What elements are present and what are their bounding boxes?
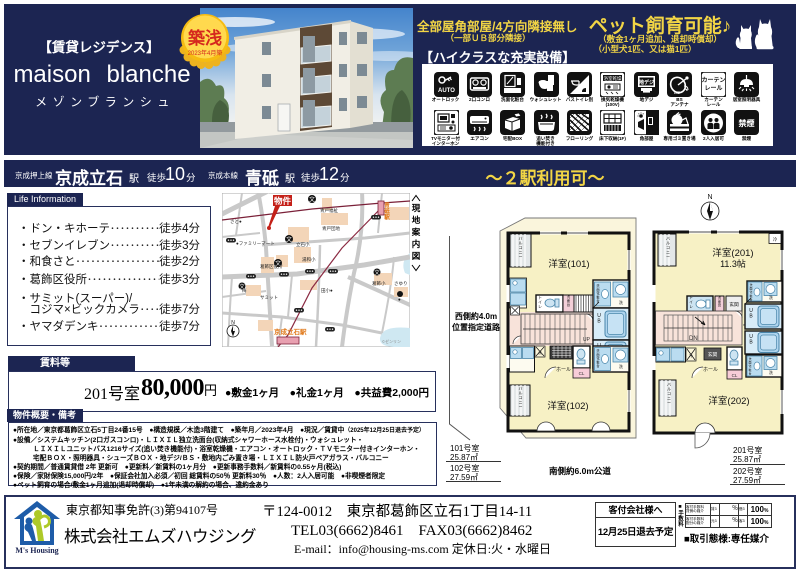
svg-text:2023年4月築: 2023年4月築 [188,49,223,57]
svg-text:M's Housing: M's Housing [15,546,58,555]
svg-text:洗: 洗 [538,350,542,355]
svg-text:レール: レール [704,85,722,92]
svg-text:玄関: 玄関 [708,351,718,358]
svg-text:洗: 洗 [619,299,623,305]
svg-text:駅: 駅 [384,213,390,221]
svg-text:●: ● [398,297,401,302]
svg-text:さと●: さと● [230,218,242,224]
svg-text:案: 案 [411,227,421,237]
svg-text:洗: 洗 [769,294,773,300]
svg-text:禁煙: 禁煙 [738,118,755,128]
svg-text:CL: CL [579,371,585,376]
svg-text:玄関: 玄関 [729,301,739,308]
svg-text:文: 文 [309,196,315,204]
svg-text:文: 文 [374,269,380,277]
svg-text:地デジ: 地デジ [639,79,654,86]
svg-text:台: 台 [748,370,751,375]
svg-text:さゆり: さゆり [394,280,408,287]
svg-text:ー: ー [519,254,523,259]
svg-text:ー: ー [667,400,671,405]
svg-text:©ゼンリン: ©ゼンリン [382,338,401,344]
svg-text:築浅: 築浅 [187,28,222,48]
svg-text:レ: レ [689,305,693,309]
svg-text:浴室乾燥: 浴室乾燥 [604,75,622,82]
svg-text:台: 台 [596,363,599,368]
svg-text:冷: 冷 [773,236,778,243]
svg-text:レ: レ [538,304,542,309]
svg-text:CL: CL [732,373,738,378]
svg-text:現: 現 [412,203,421,213]
svg-text:地: 地 [412,215,421,225]
svg-text:DN: DN [689,336,698,342]
svg-text:冷: 冷 [689,353,693,358]
svg-text:内: 内 [412,239,421,249]
svg-text:葛飾区役所: 葛飾区役所 [260,263,283,270]
svg-text:台: 台 [718,303,721,308]
svg-text:砥: 砥 [384,207,390,215]
svg-text:洗: 洗 [769,369,773,375]
svg-text:京成立石駅: 京成立石駅 [274,327,307,336]
svg-text:ト: ト [689,296,693,300]
svg-text:葛飾小: 葛飾小 [372,280,386,287]
svg-text:ー: ー [519,404,523,409]
svg-text:BS: BS [674,90,680,95]
svg-text:ホール: ホール [556,367,571,373]
svg-text:11.3帖: 11.3帖 [720,258,746,269]
svg-text:イ: イ [689,299,693,304]
svg-text:AUTO: AUTO [438,88,455,94]
svg-text:物件: 物件 [274,196,292,206]
svg-text:湯和小: 湯和小 [302,256,316,263]
svg-text:UP: UP [583,337,591,343]
svg-text:洗: 洗 [619,363,623,369]
svg-text:ー: ー [666,254,670,259]
svg-text:カーテン: カーテン [701,77,725,84]
svg-text:洋室(101): 洋室(101) [548,258,589,270]
svg-text:青戸団地: 青戸団地 [322,225,340,232]
svg-text:N: N [707,194,712,201]
svg-text:洋室(202): 洋室(202) [708,395,749,407]
svg-text:青: 青 [384,201,390,209]
svg-text:ホール: ホール [703,367,718,373]
svg-text:N: N [231,320,235,326]
svg-text:立石小: 立石小 [296,241,310,248]
svg-text:洋室(201): 洋室(201) [712,247,753,259]
svg-text:図: 図 [412,251,421,261]
svg-text:文: 文 [286,236,292,244]
svg-text:洋室(102): 洋室(102) [547,400,588,412]
svg-text:青戸福祉: 青戸福祉 [320,207,338,214]
